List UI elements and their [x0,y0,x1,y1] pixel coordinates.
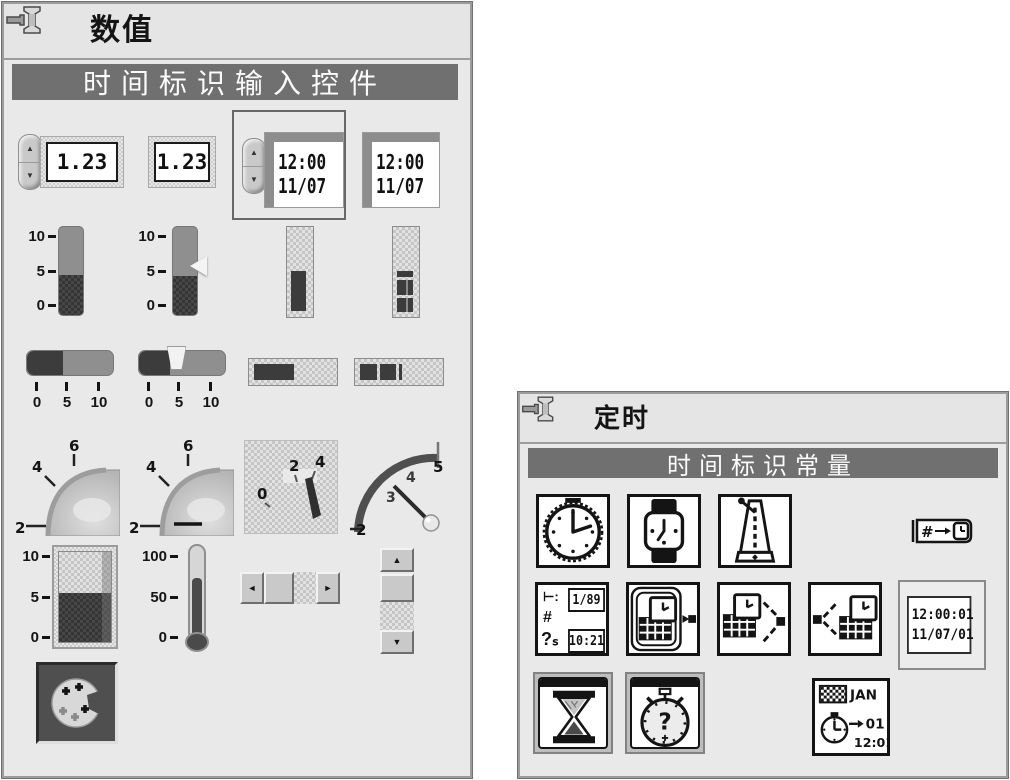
timestamp-constant-item[interactable]: 12:00:01 11/07/01 [898,580,986,670]
tick-count-ms-item[interactable] [536,494,610,568]
increment-icon[interactable]: ▲ [243,139,265,167]
numeric-indicator[interactable]: 1.23 [148,136,216,188]
pushpin-icon[interactable] [520,394,560,424]
wait-ms-item[interactable] [627,494,701,568]
meter-control[interactable]: 0 2 4 [244,440,338,534]
format-datetime-string-item[interactable]: ⊢: # ?ₛ 1/89 10:21 [535,582,609,656]
metronome-icon [721,497,789,565]
numeric-palette-title: 数值 [90,4,154,58]
timestamp-control-date: 11/07 [278,174,329,198]
numeric-control[interactable]: 1.23 [40,136,124,188]
thermometer-scale: 100 50 0 [128,548,178,646]
elapsed-time-item[interactable]: ? [625,672,705,754]
svg-text:2: 2 [15,519,25,536]
numeric-control-value: 1.23 [57,150,108,174]
numeric-control-spinner[interactable]: ▲ ▼ [18,134,42,190]
vertical-graduated-bar[interactable] [392,226,420,318]
thermometer-fill [192,578,202,638]
scroll-down-icon[interactable]: ▼ [380,630,414,654]
horizontal-scrollbar[interactable]: ◄ ► [240,572,340,604]
vertical-scrollbar[interactable]: ▲ ▼ [380,548,414,654]
numeric-indicator-value: 1.23 [157,150,208,174]
svg-text:?: ? [658,710,671,736]
numeric-palette-banner: 时间标识输入控件 [12,64,458,100]
horizontal-graduated-bar[interactable] [354,358,444,386]
numeric-palette-body: 时间标识输入控件 ▲ ▼ 1.23 1.23 ▲ ▼ 12:00 11/07 [4,60,470,776]
timing-palette-title: 定时 [594,394,650,442]
increment-icon[interactable]: ▲ [19,135,41,163]
scrollbar-thumb[interactable] [264,572,294,604]
desktop: { "left_palette": { "title": "数值", "bann… [0,0,1010,780]
svg-text:6: 6 [69,437,79,455]
seconds-to-datetime-item[interactable] [808,582,882,656]
svg-text:4: 4 [315,453,325,471]
vertical-progress-bar[interactable] [286,226,314,318]
thermometer-control[interactable] [184,542,212,654]
timestamp-constant-time: 12:00:01 [912,605,970,625]
meter-face: 0 2 4 [245,441,339,535]
timestamp-control-time: 12:00 [278,150,329,174]
get-datetime-seconds-icon [629,585,697,653]
stopwatch-icon: ? [634,687,696,749]
vertical-pointer-slide-scale: 10 5 0 [124,228,166,314]
svg-text:JAN: JAN [849,687,877,703]
timing-palette: 定时 时间标识常量 [518,392,1008,778]
decrement-icon[interactable]: ▼ [243,167,265,194]
horizontal-progress-bar[interactable] [248,358,338,386]
datetime-to-seconds-icon [720,585,788,653]
svg-text:5: 5 [433,458,443,476]
datetime-to-seconds-item[interactable] [717,582,791,656]
vertical-fill-slide-scale: 10 5 0 [14,228,56,314]
numeric-palette: 数值 时间标识输入控件 ▲ ▼ 1.23 1.23 ▲ ▼ 12:00 11/0… [2,2,472,778]
tank-control[interactable] [52,545,118,649]
scroll-up-icon[interactable]: ▲ [380,548,414,572]
get-datetime-in-seconds-item[interactable] [626,582,700,656]
decrement-icon[interactable]: ▼ [19,163,41,190]
clock-icon [539,497,607,565]
time-delay-item[interactable] [533,672,613,754]
numeric-palette-titlebar[interactable]: 数值 [4,4,470,60]
h-slide-scale: 0 [33,394,41,411]
svg-text:#: # [921,523,934,541]
timestamp-indicator[interactable]: 12:00 11/07 [362,132,440,208]
timestamp-control-spinner[interactable]: ▲ ▼ [242,138,266,194]
svg-text:6: 6 [183,437,193,455]
framed-color-box[interactable] [36,662,118,744]
scroll-left-icon[interactable]: ◄ [240,572,264,604]
timing-palette-body: 时间标识常量 [520,444,1006,776]
meter-needle [305,477,321,519]
get-datetime-string-icon: JAN 01 12:01 [815,681,887,753]
horizontal-fill-slide[interactable] [26,350,114,376]
get-datetime-string-item[interactable]: JAN 01 12:01 [812,678,890,756]
wait-until-next-multiple-item[interactable] [718,494,792,568]
slide-pointer-thumb[interactable] [190,256,207,276]
seconds-to-datetime-icon [811,585,879,653]
timing-palette-banner: 时间标识常量 [528,448,998,478]
knob-control[interactable]: 6 4 2 [14,436,120,536]
hourglass-icon [546,689,602,745]
svg-text:0: 0 [257,485,267,503]
svg-text:3: 3 [386,490,396,506]
svg-text:2: 2 [356,521,366,536]
svg-text:4: 4 [32,458,42,476]
timestamp-constant-date: 11/07/01 [912,625,970,645]
wristwatch-icon [630,497,698,565]
timestamp-indicator-date: 11/07 [376,174,426,198]
dial-control[interactable]: 6 4 2 [128,436,234,536]
pushpin-icon[interactable] [4,4,48,36]
scroll-right-icon[interactable]: ► [316,572,340,604]
svg-text:12:01: 12:01 [854,735,887,750]
svg-text:4: 4 [406,470,416,486]
vertical-fill-slide[interactable] [58,226,84,316]
timestamp-indicator-time: 12:00 [376,150,426,174]
tank-scale: 10 5 0 [8,548,50,646]
svg-text:2: 2 [289,457,299,475]
gauge-needle [394,486,430,522]
timing-palette-titlebar[interactable]: 定时 [520,394,1006,444]
to-time-stamp-item[interactable]: # [910,518,974,544]
svg-text:2: 2 [129,519,139,536]
scrollbar-thumb[interactable] [380,574,414,602]
timestamp-control[interactable]: 12:00 11/07 [264,132,344,208]
timestamp-constant-display: 12:00:01 11/07/01 [907,596,971,654]
color-palette-icon [39,665,115,741]
svg-text:01: 01 [866,717,885,733]
gauge-control[interactable]: 2 3 4 5 [350,436,446,536]
svg-text:4: 4 [146,458,156,476]
